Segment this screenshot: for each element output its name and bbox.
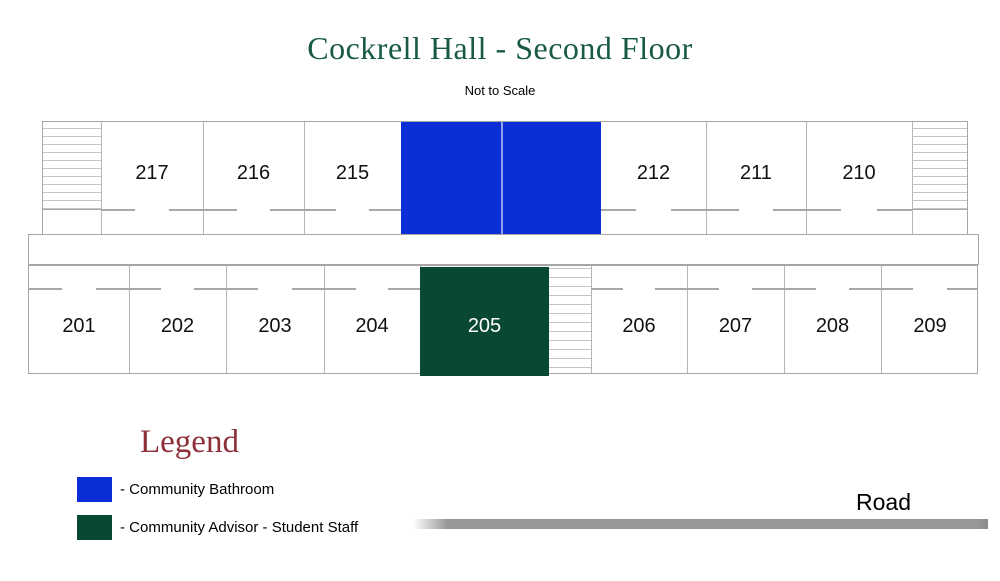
door-wall bbox=[292, 288, 324, 290]
room-212: 212 bbox=[601, 160, 706, 186]
room-207: 207 bbox=[687, 313, 784, 339]
room-209: 209 bbox=[881, 313, 979, 339]
legend-item-advisor: - Community Advisor - Student Staff bbox=[77, 515, 358, 540]
door-wall bbox=[270, 209, 304, 211]
room-206: 206 bbox=[591, 313, 687, 339]
door-wall bbox=[881, 288, 913, 290]
bottom-wing: 201 202 203 204 205 206 207 208 209 bbox=[28, 265, 978, 374]
door-wall bbox=[101, 209, 135, 211]
room-202: 202 bbox=[129, 313, 226, 339]
door-wall bbox=[706, 209, 739, 211]
room-217: 217 bbox=[101, 160, 203, 186]
door-wall bbox=[591, 288, 623, 290]
door-wall bbox=[947, 288, 978, 290]
corridor bbox=[28, 234, 979, 265]
door-wall bbox=[601, 209, 636, 211]
legend-heading: Legend bbox=[140, 424, 239, 461]
room-210: 210 bbox=[806, 160, 912, 186]
door-wall bbox=[687, 288, 719, 290]
door-wall bbox=[369, 209, 401, 211]
door-wall bbox=[655, 288, 687, 290]
door-wall bbox=[877, 209, 912, 211]
road-label: Road bbox=[856, 489, 911, 516]
door-wall bbox=[96, 288, 129, 290]
bathroom-partition bbox=[501, 122, 503, 234]
door-wall bbox=[129, 288, 161, 290]
door-wall bbox=[194, 288, 226, 290]
room-204: 204 bbox=[324, 313, 420, 339]
door-wall bbox=[773, 209, 806, 211]
room-216: 216 bbox=[203, 160, 304, 186]
door-wall bbox=[304, 209, 336, 211]
legend-item-label: - Community Advisor - Student Staff bbox=[120, 515, 358, 540]
legend-swatch-bathroom bbox=[77, 477, 112, 502]
door-wall bbox=[169, 209, 203, 211]
room-203: 203 bbox=[226, 313, 324, 339]
legend-swatch-advisor bbox=[77, 515, 112, 540]
stairwell-hatch-center bbox=[549, 268, 591, 371]
room-201: 201 bbox=[29, 313, 129, 339]
door-wall bbox=[752, 288, 784, 290]
room-215: 215 bbox=[304, 160, 401, 186]
door-wall bbox=[226, 288, 258, 290]
top-wing: 217 216 215 212 211 210 bbox=[42, 121, 968, 235]
community-bathroom-block bbox=[401, 122, 601, 234]
stairwell-hatch-right bbox=[912, 128, 967, 210]
road-bar bbox=[413, 519, 988, 529]
door-wall bbox=[806, 209, 841, 211]
door-wall bbox=[203, 209, 237, 211]
legend-item-label: - Community Bathroom bbox=[120, 477, 274, 502]
legend-item-bathroom: - Community Bathroom bbox=[77, 477, 274, 502]
door-wall bbox=[324, 288, 356, 290]
room-211: 211 bbox=[706, 160, 806, 186]
room-208: 208 bbox=[784, 313, 881, 339]
room-205: 205 bbox=[420, 313, 549, 339]
door-wall bbox=[671, 209, 706, 211]
door-wall bbox=[784, 288, 816, 290]
door-wall bbox=[388, 288, 420, 290]
stairwell-hatch-left bbox=[43, 128, 101, 210]
door-wall bbox=[849, 288, 881, 290]
door-wall bbox=[29, 288, 62, 290]
